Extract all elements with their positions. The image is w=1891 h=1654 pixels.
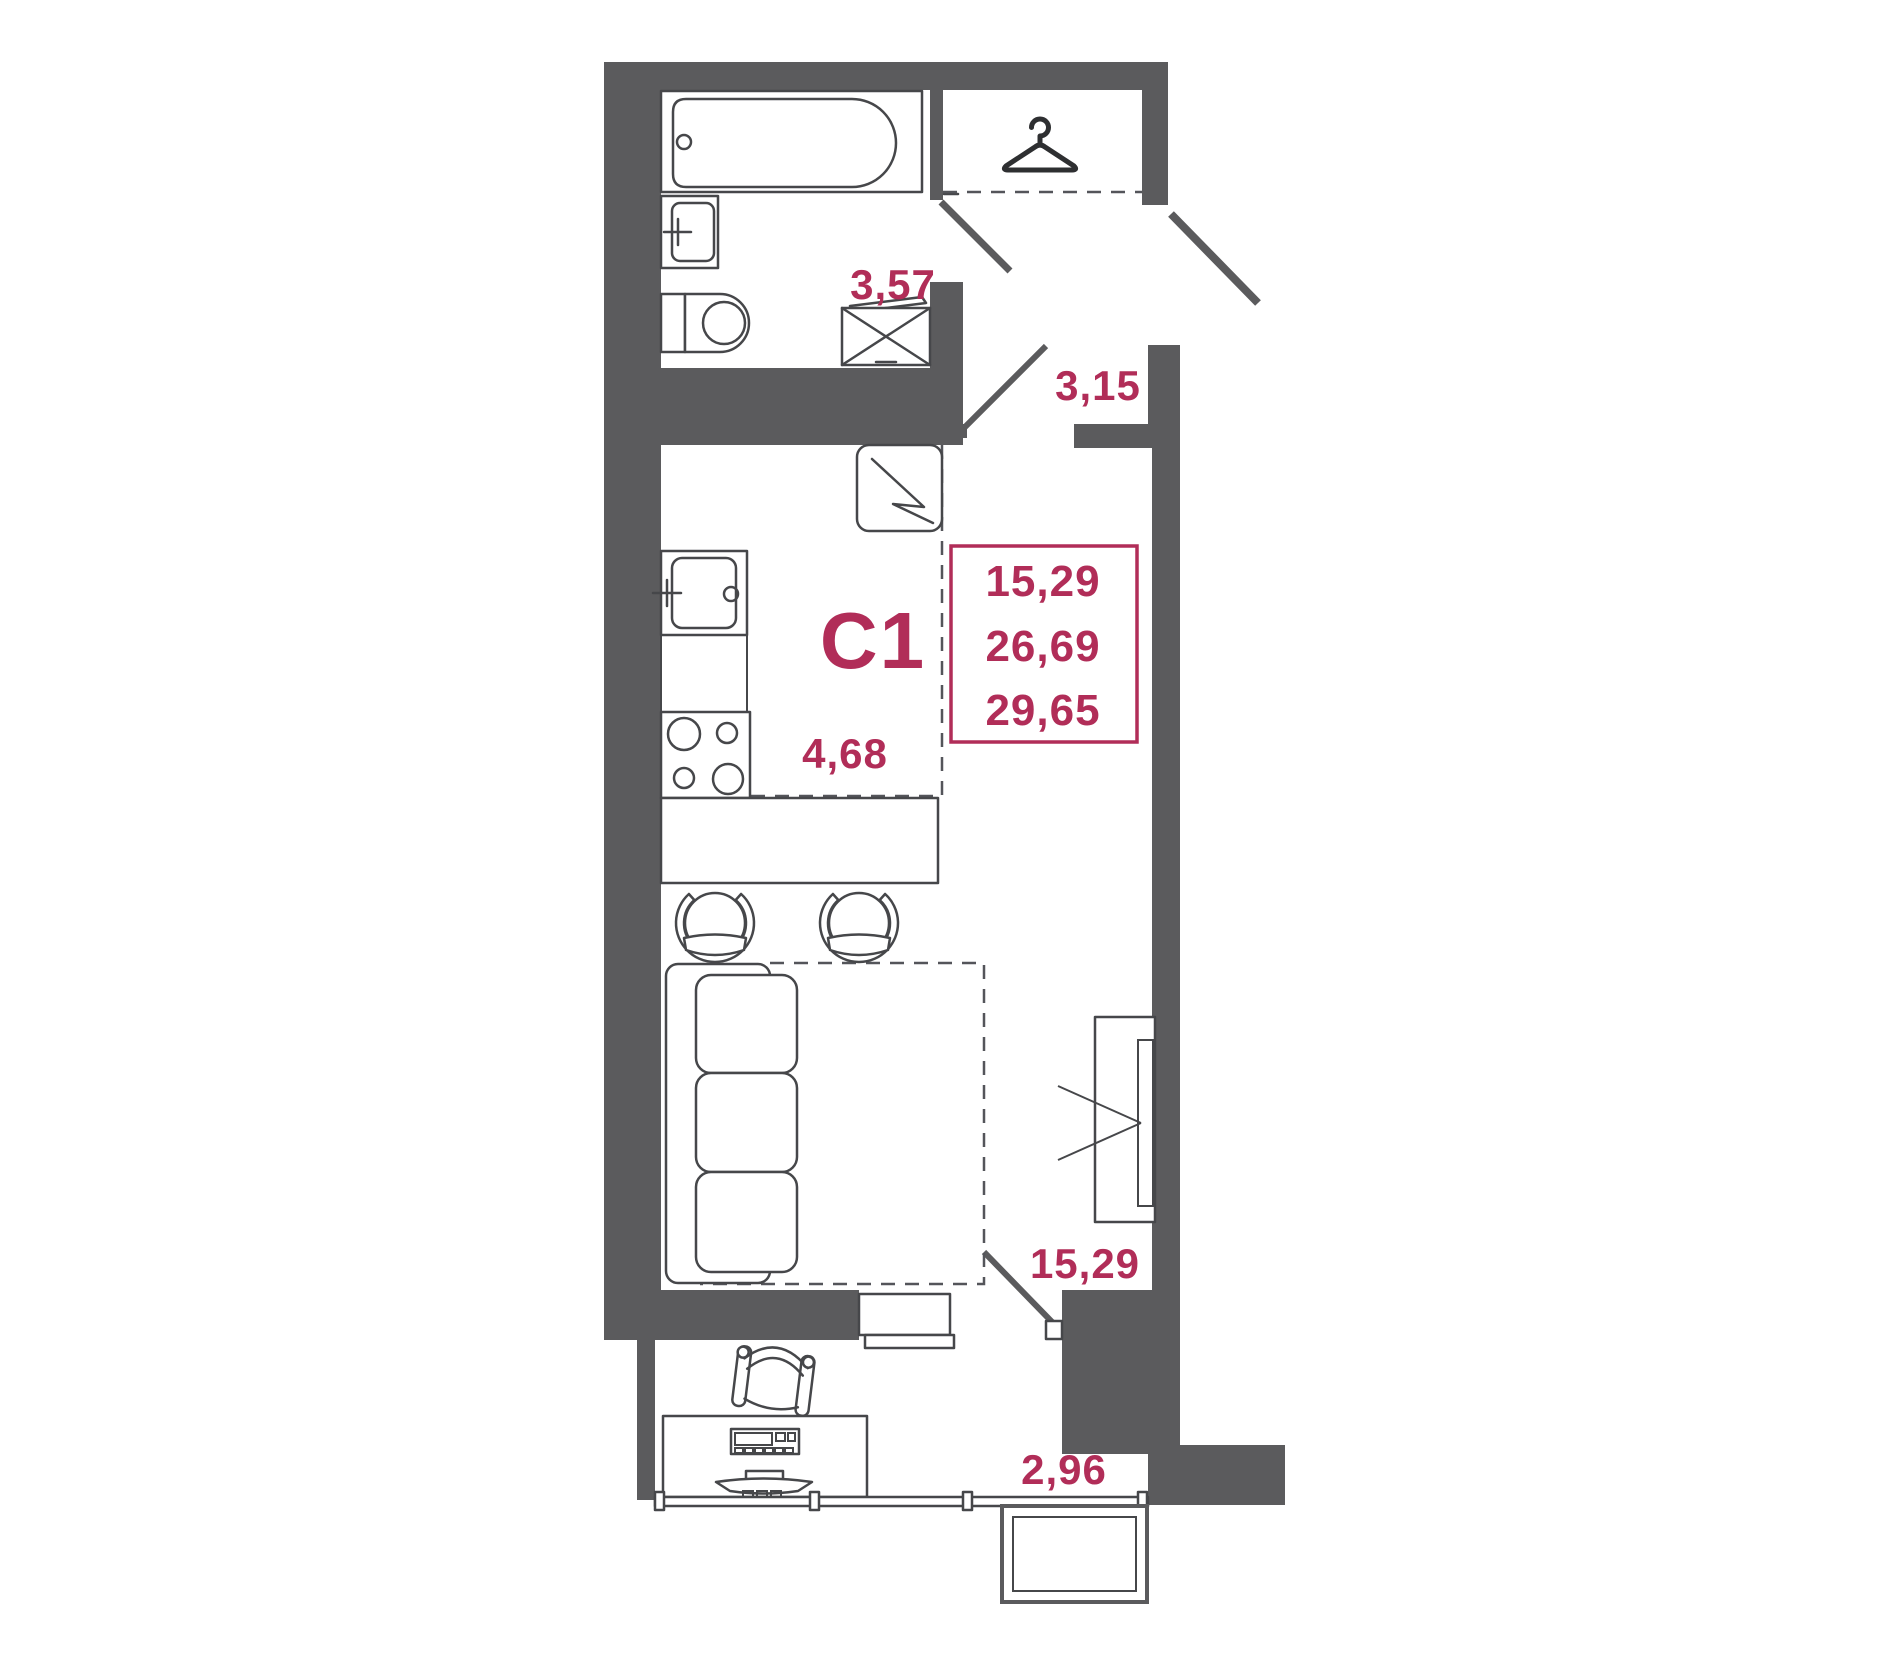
wall-left	[604, 62, 661, 1340]
wall-bottom-pillar	[1062, 1290, 1180, 1454]
balcony-door-hinge	[1046, 1321, 1062, 1339]
balcony-area-label: 2,96	[1021, 1446, 1107, 1493]
entry-door-leaf	[1171, 214, 1258, 303]
sofa-cushion-3	[696, 1172, 797, 1272]
dining-chair-2	[820, 893, 898, 962]
wall-bottom-left	[604, 1290, 859, 1340]
wall-foot-block	[1148, 1445, 1285, 1505]
wall-bath-closet-divider	[930, 90, 943, 200]
office-chair-back-inner	[747, 1355, 804, 1376]
hallway-area-label: 3,15	[1055, 362, 1141, 409]
toilet-tank	[661, 294, 685, 352]
kitchen-door-leaf	[964, 346, 1046, 428]
bathtub	[661, 91, 922, 192]
glazing-mullion-2	[810, 1492, 819, 1510]
office-chair-seat	[744, 1399, 798, 1412]
wall-hall-stub	[1074, 424, 1180, 448]
wall-bath-bottom-band	[604, 368, 963, 445]
floor-plan-svg: 3,57 3,15 C1 4,68 15,29 26,69 29,65 15,2…	[0, 0, 1891, 1654]
bar-table	[661, 798, 938, 883]
fridge	[857, 445, 942, 531]
window-sill	[865, 1335, 954, 1348]
kitchen-counter	[661, 635, 747, 712]
bathroom-area-label: 3,57	[850, 261, 936, 308]
office-chair-knob-right	[802, 1356, 814, 1368]
closet	[1004, 119, 1075, 170]
window-frame	[859, 1294, 950, 1335]
bathroom-door-leaf	[941, 202, 1010, 271]
stove	[661, 712, 750, 798]
living-area-label: 15,29	[1030, 1240, 1140, 1287]
wardrobe	[1058, 1017, 1155, 1222]
area-value-3: 29,65	[985, 686, 1100, 735]
glazing-mullion-1	[655, 1492, 664, 1510]
floor-plan: 3,57 3,15 C1 4,68 15,29 26,69 29,65 15,2…	[0, 0, 1891, 1654]
unit-type-label: C1	[820, 596, 926, 685]
sofa-cushion-2	[696, 1073, 797, 1172]
chair-seat	[684, 935, 746, 956]
wardrobe-body	[1095, 1017, 1155, 1222]
kitchen-area-label: 4,68	[802, 730, 888, 777]
chair-seat	[828, 935, 890, 956]
sofa	[666, 964, 797, 1283]
area-value-1: 15,29	[985, 557, 1100, 606]
hanger-icon	[1004, 119, 1075, 170]
ac-unit-outer	[1002, 1506, 1147, 1602]
wall-closet-right	[1142, 90, 1168, 205]
wall-top	[604, 62, 1168, 90]
office-chair	[731, 1343, 816, 1416]
dining-chair-1	[676, 893, 754, 962]
ac-unit	[1002, 1506, 1147, 1602]
keyboard	[731, 1429, 799, 1454]
wall-balcony-left	[637, 1340, 655, 1500]
balcony-window	[859, 1294, 954, 1348]
glazing-mullion-3	[963, 1492, 972, 1510]
area-value-2: 26,69	[985, 622, 1100, 671]
office-chair-knob-left	[737, 1346, 749, 1358]
bathroom-fixtures	[661, 91, 930, 365]
sofa-cushion-1	[696, 975, 797, 1073]
